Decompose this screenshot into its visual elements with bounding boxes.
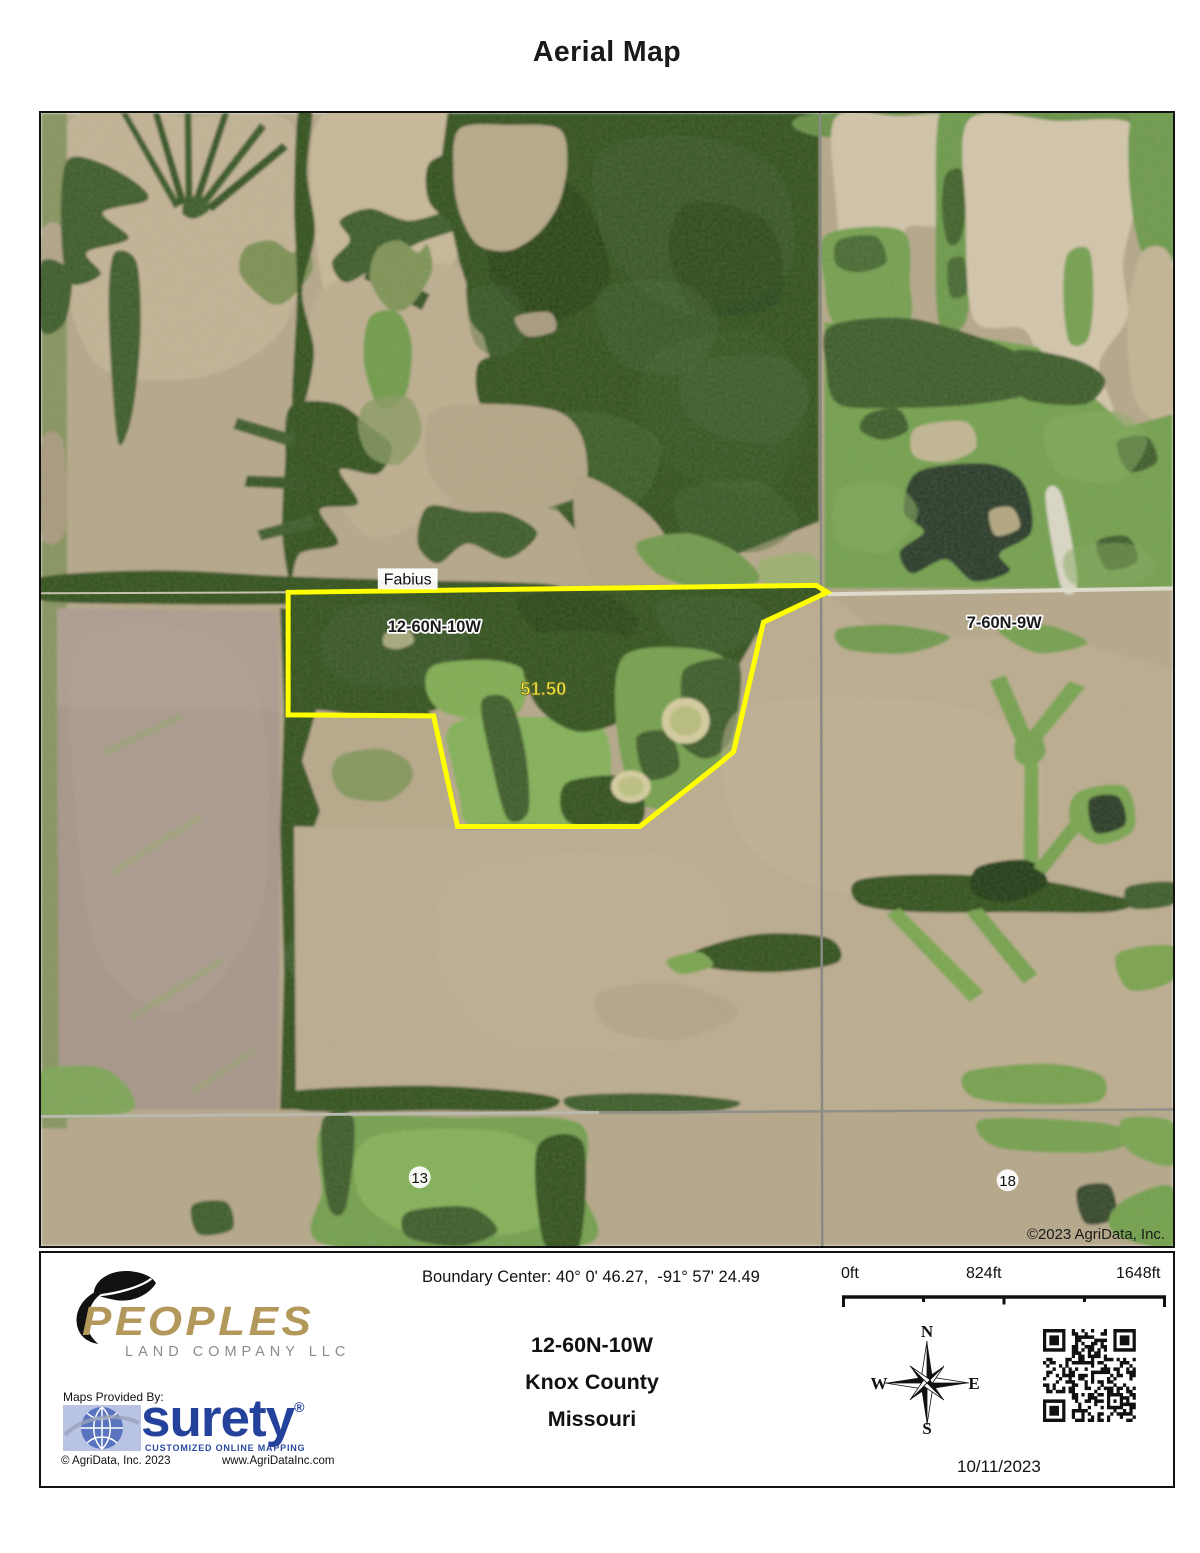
svg-text:N: N (921, 1323, 934, 1341)
svg-text:E: E (968, 1374, 979, 1393)
svg-text:51.50: 51.50 (520, 678, 566, 699)
svg-text:13: 13 (411, 1170, 428, 1187)
svg-text:©2023 AgriData, Inc.: ©2023 AgriData, Inc. (1027, 1226, 1165, 1243)
svg-text:7-60N-9W: 7-60N-9W (967, 614, 1042, 632)
svg-text:Fabius: Fabius (384, 571, 432, 588)
svg-text:W: W (871, 1374, 888, 1393)
svg-text:S: S (922, 1419, 931, 1435)
svg-text:12-60N-10W: 12-60N-10W (388, 618, 482, 636)
svg-text:18: 18 (999, 1173, 1016, 1190)
